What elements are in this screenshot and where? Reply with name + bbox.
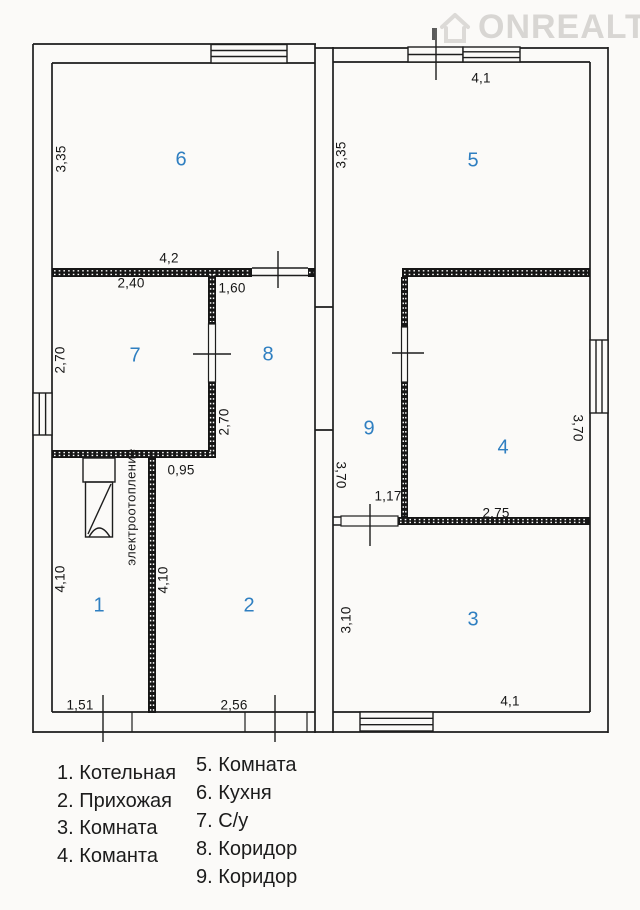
dim-room1-bottom: 1,51: [66, 698, 93, 713]
dim-room3-bottom: 4,1: [500, 694, 519, 709]
dim-room4-bottom: 2,75: [482, 506, 509, 521]
dim-room2-bottom: 2,56: [220, 698, 247, 713]
outer-walls: [33, 44, 608, 733]
dim-room7-top: 2,40: [117, 276, 144, 291]
floorplan-scan-page: ONREALT: [0, 0, 640, 910]
legend-item-3: 3. Комната: [57, 817, 158, 840]
dim-room7-right: 2,70: [217, 408, 232, 435]
dim-room9-left: 3,70: [334, 461, 349, 488]
legend-item-2: 2. Прихожая: [57, 790, 172, 813]
legend-item-9: 9. Коридор: [196, 866, 297, 889]
room-number-9: 9: [363, 418, 374, 441]
dim-kitchen-left: 3,35: [54, 145, 69, 172]
dim-room5-left: 3,35: [334, 141, 349, 168]
dim-room4-right: 3,70: [571, 414, 586, 441]
legend-item-7: 7. С/у: [196, 810, 248, 833]
legend-item-1: 1. Котельная: [57, 762, 176, 785]
windows: [33, 28, 608, 731]
dim-room2-left: 4,10: [156, 566, 171, 593]
room-number-7: 7: [129, 345, 140, 368]
room-number-2: 2: [243, 595, 254, 618]
dim-room9-bottom: 1,17: [374, 489, 401, 504]
legend-item-8: 8. Коридор: [196, 838, 297, 861]
dim-room3-left: 3,10: [339, 606, 354, 633]
dim-room5-top: 4,1: [471, 71, 490, 86]
boiler-icon: [83, 458, 115, 537]
dim-room8-top: 1,60: [218, 281, 245, 296]
room-number-4: 4: [497, 437, 508, 460]
room-number-6: 6: [175, 149, 186, 172]
room-number-1: 1: [93, 595, 104, 618]
room-number-5: 5: [467, 150, 478, 173]
heating-label: электроотопление: [124, 448, 139, 565]
floor-plan: [0, 0, 640, 745]
room-number-3: 3: [467, 609, 478, 632]
dim-room7-left: 2,70: [53, 346, 68, 373]
legend-item-5: 5. Комната: [196, 754, 297, 777]
dim-room2-top: 0,95: [167, 463, 194, 478]
dim-room1-left: 4,10: [53, 565, 68, 592]
legend-item-6: 6. Кухня: [196, 782, 272, 805]
dim-wall-top: 4,2: [159, 251, 178, 266]
legend-item-4: 4. Команта: [57, 845, 158, 868]
room-number-8: 8: [262, 344, 273, 367]
